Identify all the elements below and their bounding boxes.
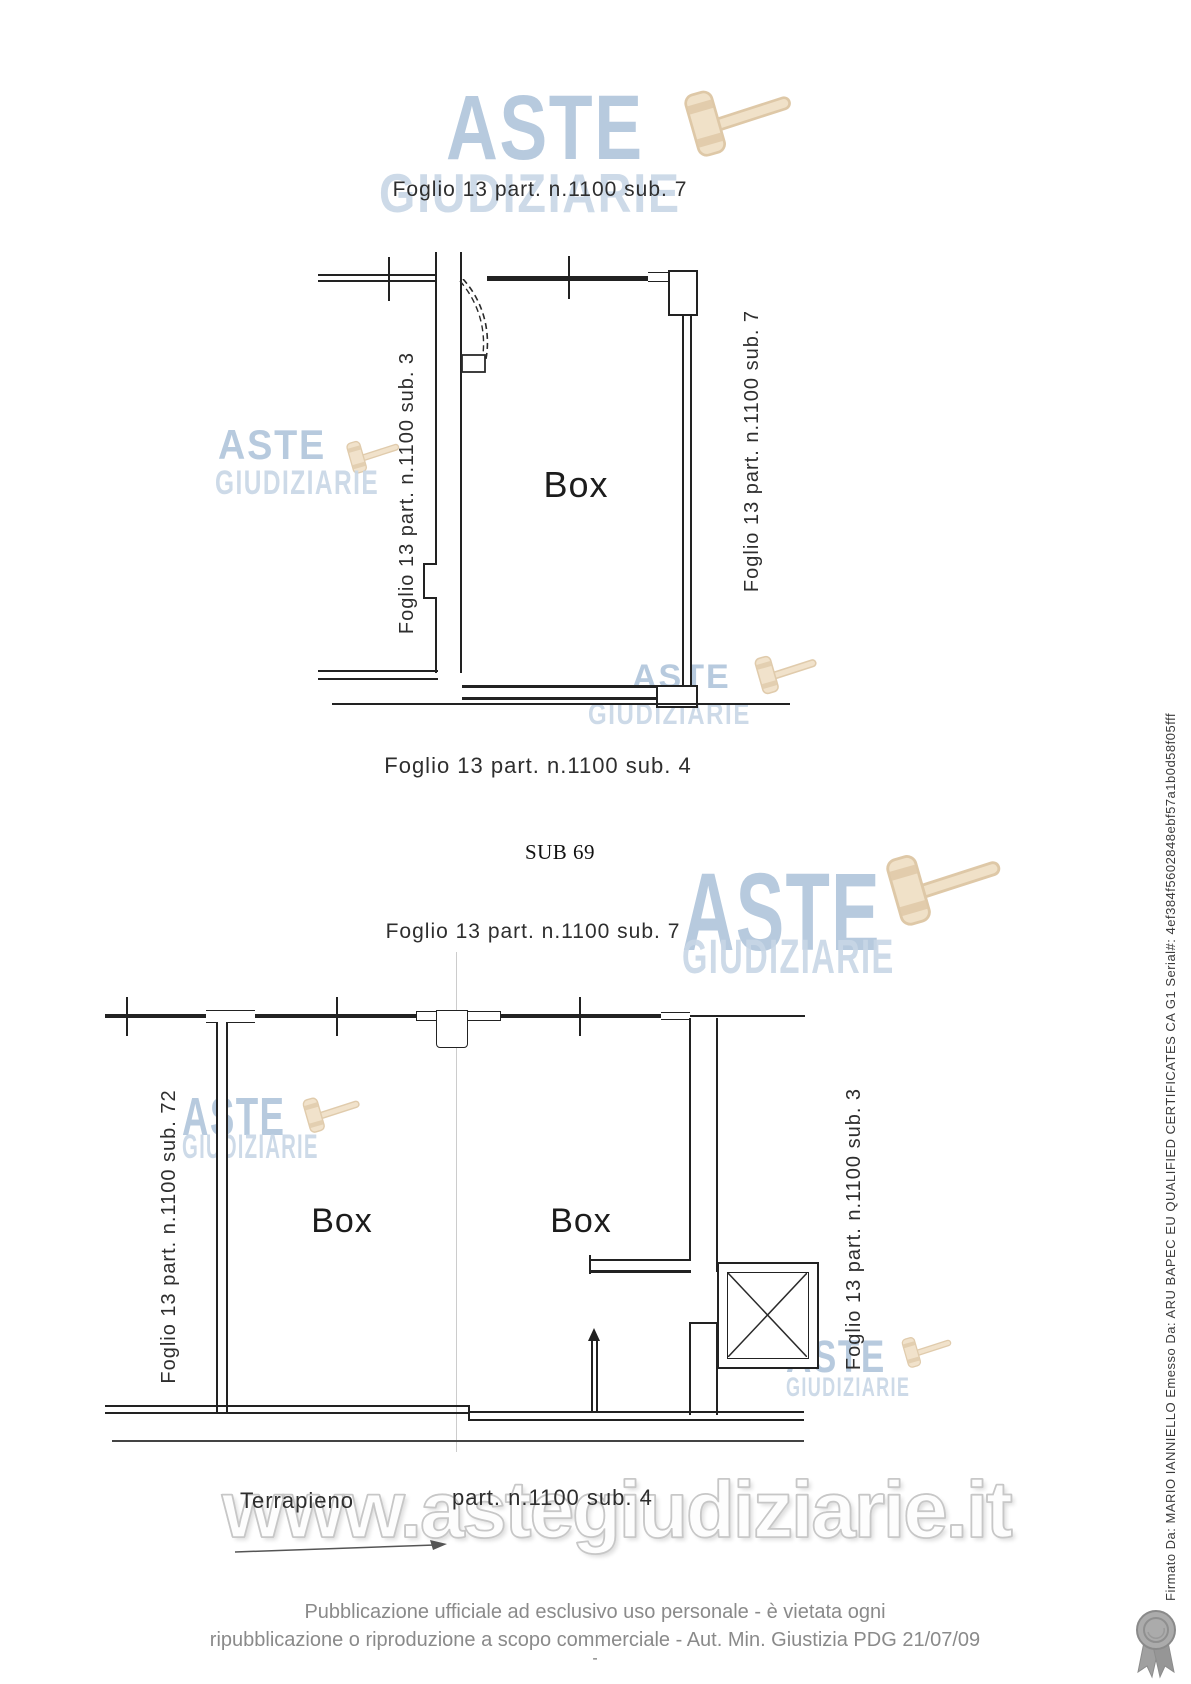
wall-line [318, 280, 435, 282]
ground-line-lower [112, 1440, 804, 1442]
wall-below-shaft [689, 1322, 718, 1415]
wall-top [105, 1014, 418, 1018]
room-label-box-right: Box [516, 1202, 646, 1241]
wall-notch [423, 563, 437, 599]
dimension-tick [126, 997, 128, 1036]
ground-line [468, 1419, 804, 1421]
room-label-box-left: Box [277, 1202, 407, 1241]
wall-top [487, 276, 654, 281]
gavel-icon [864, 848, 1002, 940]
plan1-side-label-right: Foglio 13 part. n.1100 sub. 7 [739, 290, 765, 612]
footer-notice: Pubblicazione ufficiale ad esclusivo uso… [100, 1598, 1090, 1654]
door-jamb [466, 1011, 501, 1021]
dimension-tick [579, 997, 581, 1036]
wall-mid [591, 1259, 691, 1273]
gate-post-icon [585, 1328, 603, 1414]
dimension-tick [336, 997, 338, 1036]
pillar [206, 1010, 255, 1023]
terrain-label: Terrapieno [240, 1488, 390, 1514]
digital-signature-text: Firmato Da: MARIO IANNIELLO Emesso Da: A… [1163, 667, 1178, 1601]
aste-watermark-top: ASTE [446, 82, 644, 174]
wall-left [435, 252, 462, 673]
shaft-cross-icon [728, 1273, 807, 1357]
door-jamb [416, 1011, 438, 1021]
giudiziarie-watermark-large: GIUDIZIARIE [682, 934, 895, 982]
wall-top [500, 1014, 663, 1018]
door-leaf [436, 1010, 468, 1048]
giudiziarie-watermark-plan2-left: GIUDIZIARIE [182, 1130, 319, 1164]
plan2-side-label-right: Foglio 13 part. n.1100 sub. 3 [841, 1055, 867, 1403]
plan1-side-label-left: Foglio 13 part. n.1100 sub. 3 [394, 313, 420, 673]
pillar [668, 270, 698, 316]
ground-line [468, 1411, 804, 1413]
room-label-box: Box [511, 464, 641, 506]
wall-line [318, 678, 438, 680]
wall-bottom [462, 685, 662, 700]
footer-line-1: Pubblicazione ufficiale ad esclusivo uso… [100, 1598, 1090, 1626]
plan1-title: Foglio 13 part. n.1100 sub. 7 [385, 178, 695, 202]
seal-ribbon-icon [1128, 1606, 1184, 1680]
wall-left [216, 1022, 228, 1412]
gavel-icon [653, 84, 803, 170]
wall-cap [589, 1255, 591, 1274]
gavel-icon [742, 652, 818, 702]
wall-connector [661, 1012, 690, 1020]
plan2-side-label-left: Foglio 13 part. n.1100 sub. 72 [156, 1054, 182, 1419]
giudiziarie-watermark-plan1: GIUDIZIARIE [215, 466, 379, 500]
wall-right [689, 1018, 718, 1272]
gavel-icon [886, 1334, 958, 1374]
door-swing-icon [459, 279, 495, 377]
section-heading: SUB 69 [505, 840, 615, 865]
plan1-caption: Foglio 13 part. n.1100 sub. 4 [383, 753, 693, 779]
wall-line [318, 670, 438, 672]
dimension-tick [568, 256, 570, 299]
footer-dash: - [100, 1650, 1090, 1668]
ground-line [332, 703, 790, 705]
wall-right [682, 316, 692, 687]
terrain-arrow-icon [233, 1538, 455, 1558]
wall-line [318, 274, 435, 276]
aste-watermark-plan1: ASTE [218, 424, 326, 466]
scanned-document-page: ASTE GIUDIZIARIE Foglio 13 part. n.1100 … [0, 0, 1191, 1684]
parcel-label: part. n.1100 sub. 4 [452, 1485, 662, 1511]
shaft-inner [727, 1272, 809, 1359]
plan2-title: Foglio 13 part. n.1100 sub. 7 [378, 920, 688, 944]
dimension-tick [388, 257, 390, 301]
